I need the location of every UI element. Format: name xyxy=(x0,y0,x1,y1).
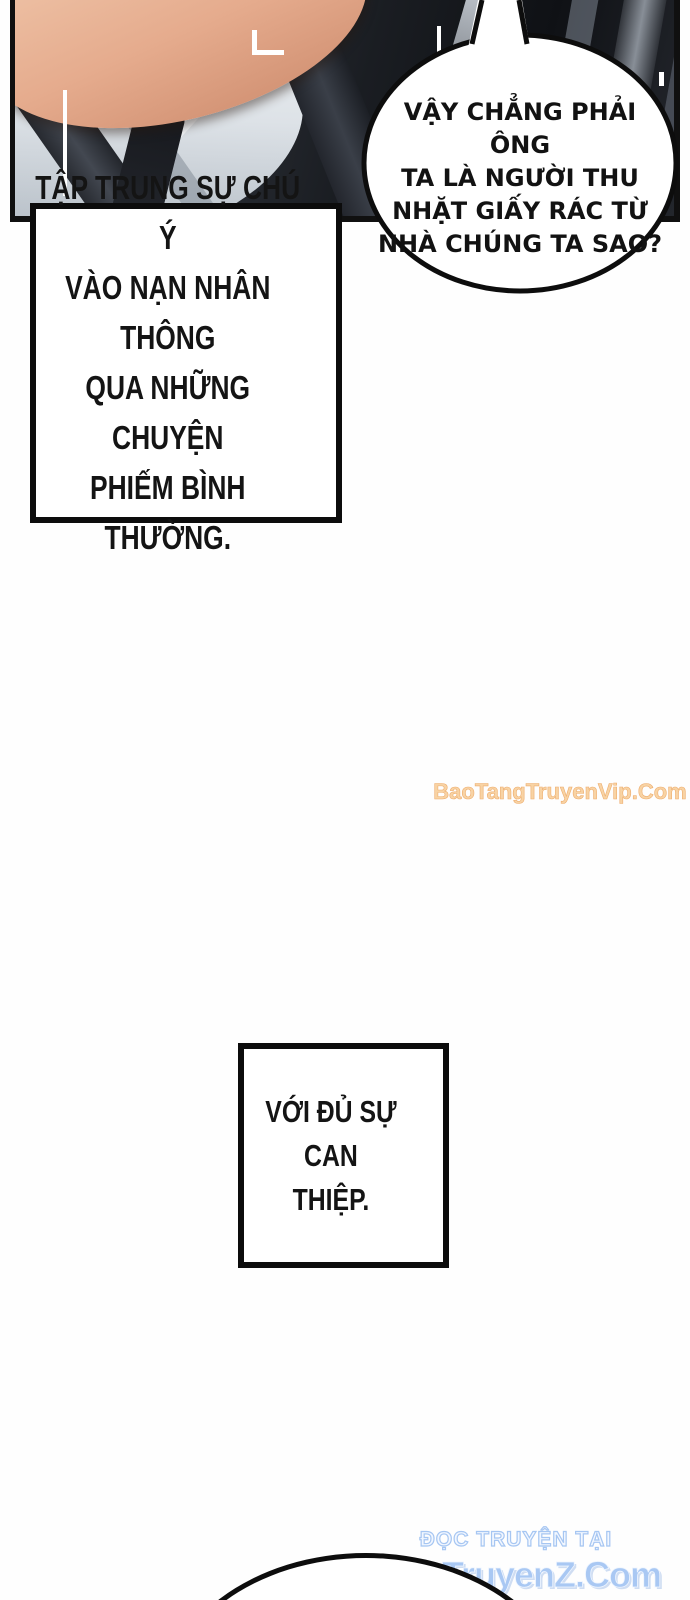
site-watermark-middle: BaoTangTruyenVip.Com xyxy=(430,779,690,805)
narration-line: TẬP TRUNG SỰ CHÚ Ý xyxy=(32,163,302,263)
narration-text: TẬP TRUNG SỰ CHÚ Ý VÀO NẠN NHÂN THÔNG QU… xyxy=(32,163,302,563)
narration-box-middle: VỚI ĐỦ SỰ CAN THIỆP. xyxy=(238,1043,449,1268)
speech-line: NHẶT GIẤY RÁC TỪ xyxy=(372,195,668,228)
narration-line: QUA NHỮNG CHUYỆN xyxy=(32,363,302,463)
narration-line: VỚI ĐỦ SỰ CAN xyxy=(242,1090,421,1178)
narration-box-top: TẬP TRUNG SỰ CHÚ Ý VÀO NẠN NHÂN THÔNG QU… xyxy=(30,203,342,523)
comic-page[interactable]: VẬY CHẲNG PHẢI ÔNG TA LÀ NGƯỜI THU NHẶT … xyxy=(0,0,690,1600)
crop-mark-corner xyxy=(252,50,284,55)
narration-line: VÀO NẠN NHÂN THÔNG xyxy=(32,263,302,363)
speech-line: NHÀ CHÚNG TA SAO? xyxy=(372,228,668,261)
speech-line: VẬY CHẲNG PHẢI ÔNG xyxy=(372,96,668,162)
speech-bubble-text: VẬY CHẲNG PHẢI ÔNG TA LÀ NGƯỜI THU NHẶT … xyxy=(372,96,668,261)
narration-line: THIỆP. xyxy=(242,1178,421,1222)
site-watermark-tagline: ĐỌC TRUYỆN TẠI xyxy=(340,1528,690,1552)
narration-line: PHIẾM BÌNH THƯỜNG. xyxy=(32,463,302,563)
speech-line: TA LÀ NGƯỜI THU xyxy=(372,162,668,195)
narration-text: VỚI ĐỦ SỰ CAN THIỆP. xyxy=(242,1090,421,1222)
